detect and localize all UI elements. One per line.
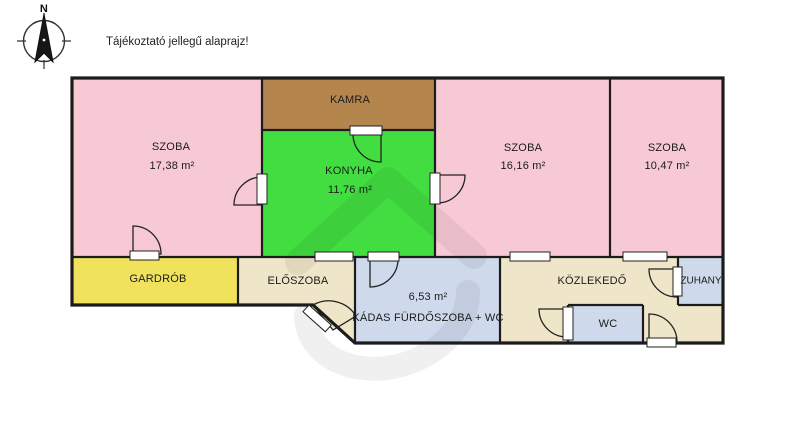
label-zuhany-name: ZUHANY (680, 276, 721, 287)
label-kozlekedo-name: KÖZLEKEDŐ (557, 275, 626, 287)
door-leaf-szoba1-gardrob (130, 251, 159, 260)
door-leaf-konyha-furdoszoba (368, 252, 399, 261)
door-leaf-kozlekedo-exit (647, 338, 676, 347)
compass-icon (17, 13, 71, 69)
label-szoba2-name: SZOBA (504, 142, 542, 154)
label-kamra-name: KAMRA (330, 94, 370, 106)
label-furdoszoba-name: KÁDAS FÜRDŐSZOBA + WC (352, 312, 503, 324)
opening-szoba3-kozlekedo (623, 252, 667, 261)
label-szoba1-area: 17,38 m² (149, 160, 194, 172)
label-szoba1-name: SZOBA (152, 141, 190, 153)
opening-konyha-eloszoba (315, 252, 353, 261)
label-gardrob-name: GARDRÓB (129, 273, 186, 285)
label-szoba2-area: 16,16 m² (500, 160, 545, 172)
door-leaf-wc (563, 307, 573, 340)
label-szoba3-name: SZOBA (648, 142, 686, 154)
compass-north-label: N (40, 3, 48, 15)
label-szoba3-area: 10,47 m² (644, 160, 689, 172)
disclaimer-note: Tájékoztató jellegű alaprajz! (106, 36, 249, 48)
door-leaf-kamra-konyha (350, 126, 382, 135)
label-konyha-name: KONYHA (325, 165, 373, 177)
label-konyha-area: 11,76 m² (328, 184, 372, 196)
door-leaf-konyha-szoba2 (430, 173, 440, 204)
label-furdoszoba-area: 6,53 m² (409, 291, 448, 303)
door-leaf-szoba1-konyha (257, 174, 267, 204)
floorplan-canvas: Tájékoztató jellegű alaprajz! N SZOBA 17… (0, 0, 800, 436)
label-wc-name: WC (599, 318, 618, 330)
opening-szoba2-kozlekedo (510, 252, 550, 261)
floorplan-drawing (0, 0, 800, 436)
label-eloszoba-name: ELŐSZOBA (268, 275, 329, 287)
